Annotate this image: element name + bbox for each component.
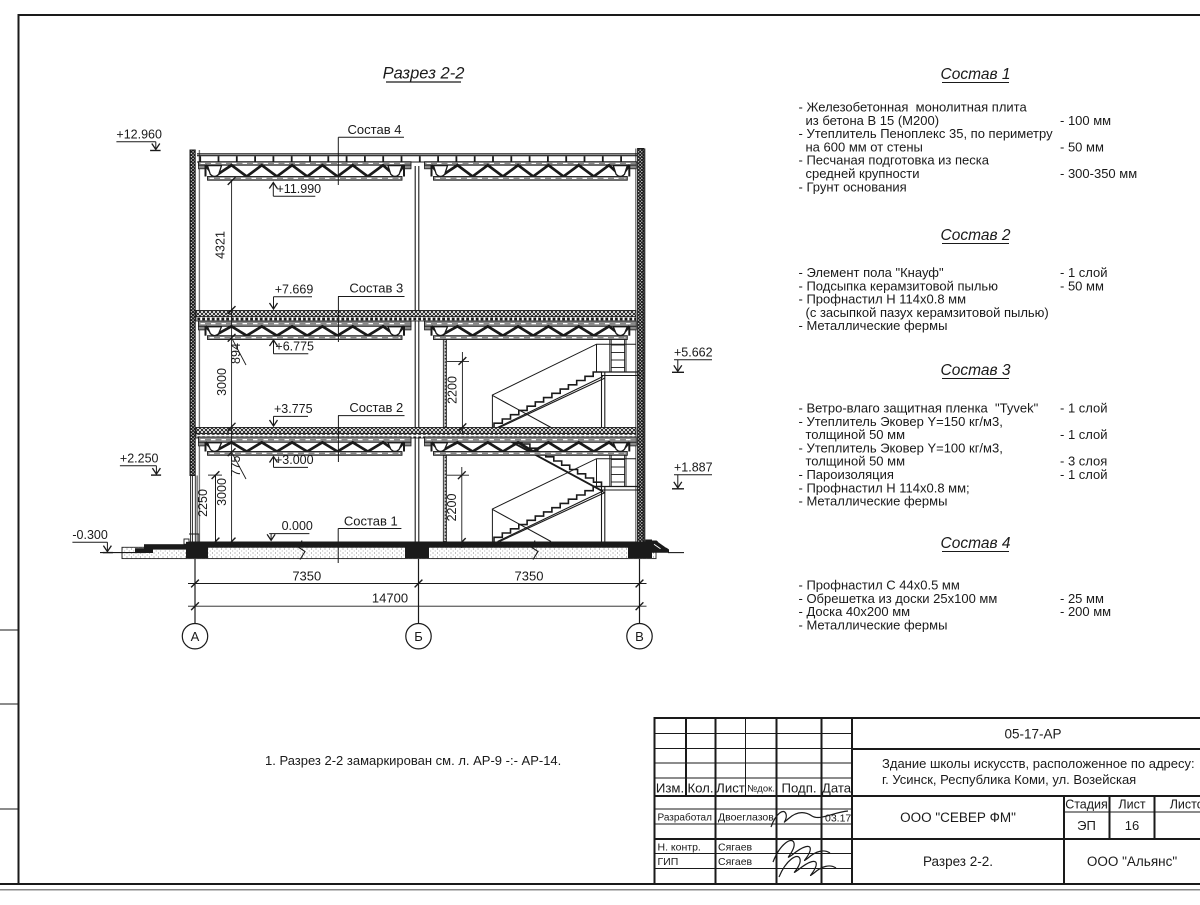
svg-text:+3.000: +3.000 — [275, 453, 314, 467]
svg-text:Сягаев: Сягаев — [718, 856, 753, 868]
svg-text:3000: 3000 — [215, 478, 229, 506]
svg-text:Состав 2: Состав 2 — [349, 400, 403, 415]
svg-text:Изм.: Изм. — [656, 781, 684, 796]
svg-text:ООО "Альянс": ООО "Альянс" — [1087, 854, 1177, 869]
svg-text:05-17-АР: 05-17-АР — [1004, 727, 1061, 742]
svg-text:Разрез 2-2: Разрез 2-2 — [383, 65, 465, 83]
svg-text:7350: 7350 — [292, 569, 321, 584]
svg-text:Дата: Дата — [822, 781, 852, 796]
svg-text:894: 894 — [229, 343, 243, 364]
svg-text:- 50 мм: - 50 мм — [1060, 278, 1104, 293]
svg-text:- 200 мм: - 200 мм — [1060, 604, 1111, 619]
svg-text:Состав 3: Состав 3 — [941, 362, 1011, 379]
svg-text:Состав 4: Состав 4 — [941, 535, 1011, 552]
svg-text:14700: 14700 — [372, 591, 408, 606]
svg-text:Состав 3: Состав 3 — [349, 281, 403, 296]
svg-text:В: В — [635, 629, 644, 644]
svg-text:- Металлические фермы: - Металлические фермы — [799, 494, 948, 509]
svg-text:- 1 слой: - 1 слой — [1060, 467, 1108, 482]
svg-text:+11.990: +11.990 — [277, 182, 322, 196]
svg-text:4321: 4321 — [214, 231, 228, 259]
svg-text:ЭП: ЭП — [1077, 818, 1096, 833]
svg-text:ГИП: ГИП — [658, 856, 679, 868]
svg-text:Разрез 2-2.: Разрез 2-2. — [923, 854, 993, 869]
svg-text:Здание школы искусств, располо: Здание школы искусств, расположенное по … — [882, 756, 1195, 771]
svg-text:Н. контр.: Н. контр. — [658, 842, 701, 854]
svg-text:3000: 3000 — [215, 368, 229, 396]
svg-text:+5.662: +5.662 — [674, 345, 713, 359]
svg-text:+6.775: +6.775 — [275, 339, 314, 353]
svg-text:Двоеглазов: Двоеглазов — [718, 812, 774, 824]
svg-text:- 300-350 мм: - 300-350 мм — [1060, 166, 1137, 181]
svg-text:- 1 слой: - 1 слой — [1060, 427, 1108, 442]
svg-text:Состав 1: Состав 1 — [344, 513, 398, 528]
svg-text:+2.250: +2.250 — [120, 451, 159, 465]
svg-text:1. Разрез 2-2 замаркирован см.: 1. Разрез 2-2 замаркирован см. л. АР-9 -… — [265, 753, 561, 768]
svg-text:2200: 2200 — [446, 376, 460, 404]
svg-text:2250: 2250 — [196, 489, 210, 517]
svg-text:- Металлические фермы: - Металлические фермы — [799, 318, 948, 333]
svg-text:- 1 слой: - 1 слой — [1060, 401, 1108, 416]
svg-text:Листов: Листов — [1170, 798, 1200, 812]
svg-text:16: 16 — [1125, 818, 1139, 833]
svg-text:Состав 2: Состав 2 — [941, 227, 1011, 244]
svg-text:2200: 2200 — [445, 494, 459, 522]
svg-text:Стадия: Стадия — [1065, 798, 1108, 812]
svg-text:Состав 1: Состав 1 — [941, 66, 1011, 83]
svg-text:+1.887: +1.887 — [674, 460, 713, 474]
svg-text:ООО "СЕВЕР ФМ": ООО "СЕВЕР ФМ" — [900, 810, 1016, 825]
svg-text:А: А — [191, 629, 200, 644]
svg-text:Лист: Лист — [716, 781, 745, 796]
svg-text:+12.960: +12.960 — [116, 127, 162, 141]
svg-text:Подп.: Подп. — [781, 781, 816, 796]
svg-text:0.000: 0.000 — [282, 519, 313, 533]
svg-text:+7.669: +7.669 — [275, 282, 314, 296]
svg-text:г. Усинск, Республика Коми, ул: г. Усинск, Республика Коми, ул. Возейска… — [882, 772, 1136, 787]
svg-text:- 50 мм: - 50 мм — [1060, 139, 1104, 154]
svg-text:Б: Б — [414, 629, 423, 644]
svg-text:7350: 7350 — [515, 569, 544, 584]
svg-text:Разработал: Разработал — [658, 812, 713, 824]
svg-text:- Грунт основания: - Грунт основания — [799, 179, 907, 194]
svg-text:+3.775: +3.775 — [274, 402, 313, 416]
svg-text:775: 775 — [229, 456, 243, 477]
svg-text:Состав 4: Состав 4 — [348, 122, 402, 137]
svg-text:-0.300: -0.300 — [72, 528, 107, 542]
svg-text:Кол.: Кол. — [687, 781, 713, 796]
svg-text:03.17: 03.17 — [825, 813, 851, 825]
svg-text:- 100 мм: - 100 мм — [1060, 113, 1111, 128]
svg-text:Лист: Лист — [1118, 798, 1145, 812]
svg-text:№док.: №док. — [747, 784, 775, 795]
svg-text:- Металлические фермы: - Металлические фермы — [799, 617, 948, 632]
svg-text:Сягаев: Сягаев — [718, 842, 753, 854]
